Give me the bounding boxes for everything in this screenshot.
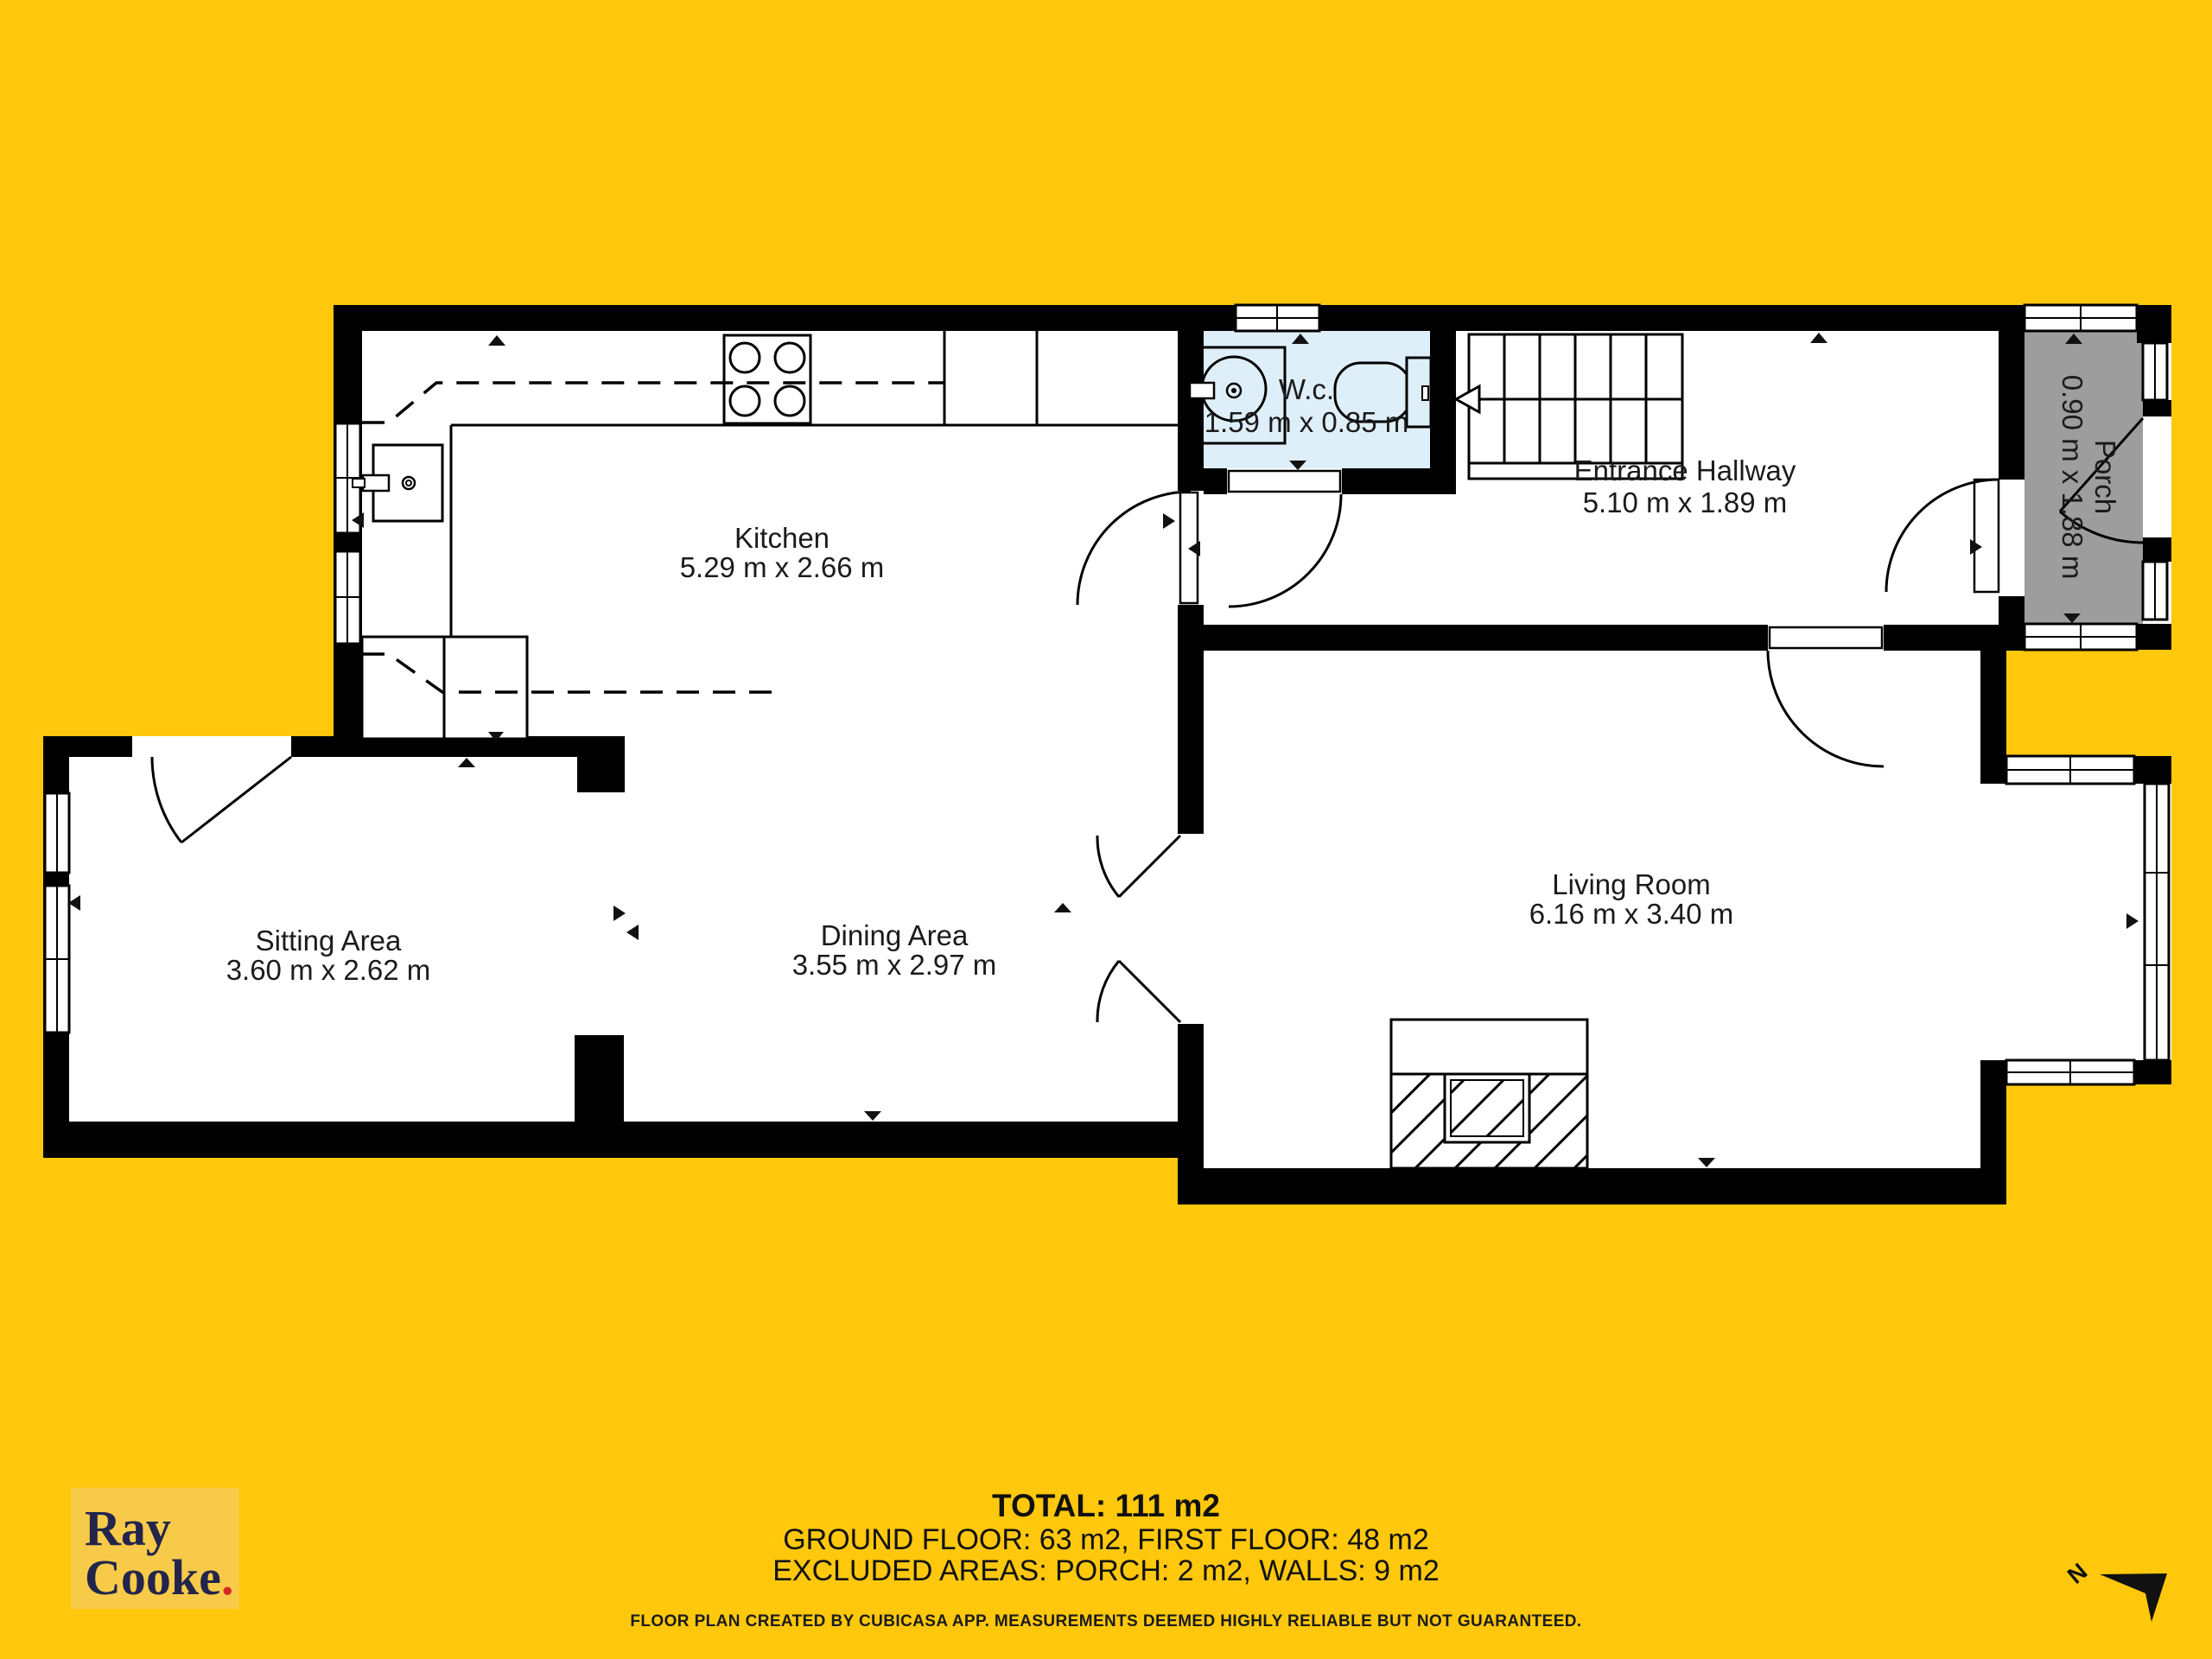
kitchen-label: Kitchen [734,522,829,554]
hallway-dims: 5.10 m x 1.89 m [1583,486,1788,518]
window-sitting-left-1 [45,793,69,873]
wall-sitting-top [43,736,625,757]
wc-label: W.c. [1279,373,1334,405]
wc-faucet-icon [1190,383,1214,398]
kitchen-dims: 5.29 m x 2.66 m [680,551,885,583]
wall-bay-corner-top [2134,756,2171,784]
window-kitchen-left-2 [335,551,360,644]
wall-stub-upper [577,757,625,792]
sink-faucet-icon [353,479,365,487]
compass: N [2063,1558,2167,1622]
bay-floor [1980,756,2171,1084]
window-porch-right-1 [2143,343,2167,400]
window-bay-bottom [2006,1060,2134,1084]
wall-stub-lower [575,1035,624,1122]
sink-faucet-icon [363,475,389,491]
north-label: N [2063,1558,2092,1589]
living-door-leaf [1770,627,1882,648]
window-porch-top [2024,305,2137,331]
wall-hallway-bottom [1178,625,2024,651]
summary-block: TOTAL: 111 m2 GROUND FLOOR: 63 m2, FIRST… [630,1488,1581,1630]
base-cabinet [362,637,444,739]
wall-living-bottom [1178,1168,2006,1205]
summary-total: TOTAL: 111 m2 [992,1488,1220,1523]
floor-plan: Kitchen 5.29 m x 2.66 m W.c. 1.59 m x 0.… [0,0,2212,1659]
wall-wc-right [1430,305,1456,468]
window-bay-right [2145,784,2169,1060]
logo: Ray Cooke . [71,1488,239,1609]
wall-porch-right-b [2143,537,2171,562]
living-label: Living Room [1552,868,1710,900]
wc-dims: 1.59 m x 0.85 m [1205,406,1409,438]
sitting-dims: 3.60 m x 2.62 m [226,954,431,986]
wc-basin-drain-icon [1231,388,1236,393]
hallway-label: Entrance Hallway [1574,454,1796,486]
summary-excluded: EXCLUDED AREAS: PORCH: 2 m2, WALLS: 9 m2 [772,1554,1440,1587]
opening-double-door [1178,834,1204,1024]
disclaimer-text: FLOOR PLAN CREATED BY CUBICASA APP. MEAS… [630,1612,1581,1630]
dining-label: Dining Area [821,919,969,951]
window-sitting-left-2 [45,886,69,1033]
toilet-flush-icon [1422,386,1428,400]
logo-line1: Ray [85,1500,171,1556]
porch-label: Porch [2089,440,2121,514]
summary-floors: GROUND FLOOR: 63 m2, FIRST FLOOR: 48 m2 [783,1523,1429,1556]
logo-line2: Cooke [85,1549,221,1605]
dining-dims: 3.55 m x 2.97 m [792,949,997,981]
wall-bay-corner-bottom [2134,1060,2171,1084]
living-dims: 6.16 m x 3.40 m [1529,898,1734,930]
wall-living-right-lower [1980,1060,2006,1205]
opening-front-door [1999,480,2024,596]
wc-door-leaf [1229,471,1340,492]
window-porch-bottom [2024,624,2137,650]
fireplace-firebox-inner [1451,1080,1523,1136]
stove [724,335,810,423]
window-wc-top [1236,305,1319,331]
opening-sitting-door [132,736,291,757]
window-porch-right-2 [2143,562,2167,620]
sitting-label: Sitting Area [256,925,402,957]
front-door-leaf [1974,480,1999,592]
window-bay-top [2006,756,2134,784]
wall-porch-corner-tr [2137,305,2171,343]
base-cabinet [444,637,527,739]
north-arrow-icon [2100,1573,2167,1622]
logo-dot: . [221,1549,234,1605]
wall-porch-right-a [2143,400,2171,416]
floorplan-page: Kitchen 5.29 m x 2.66 m W.c. 1.59 m x 0.… [0,0,2212,1659]
wall-bottom-sitting-dining [43,1122,1204,1158]
porch-dims: 0.90 m x 1.88 m [2056,375,2088,580]
fireplace [1391,1020,1587,1168]
